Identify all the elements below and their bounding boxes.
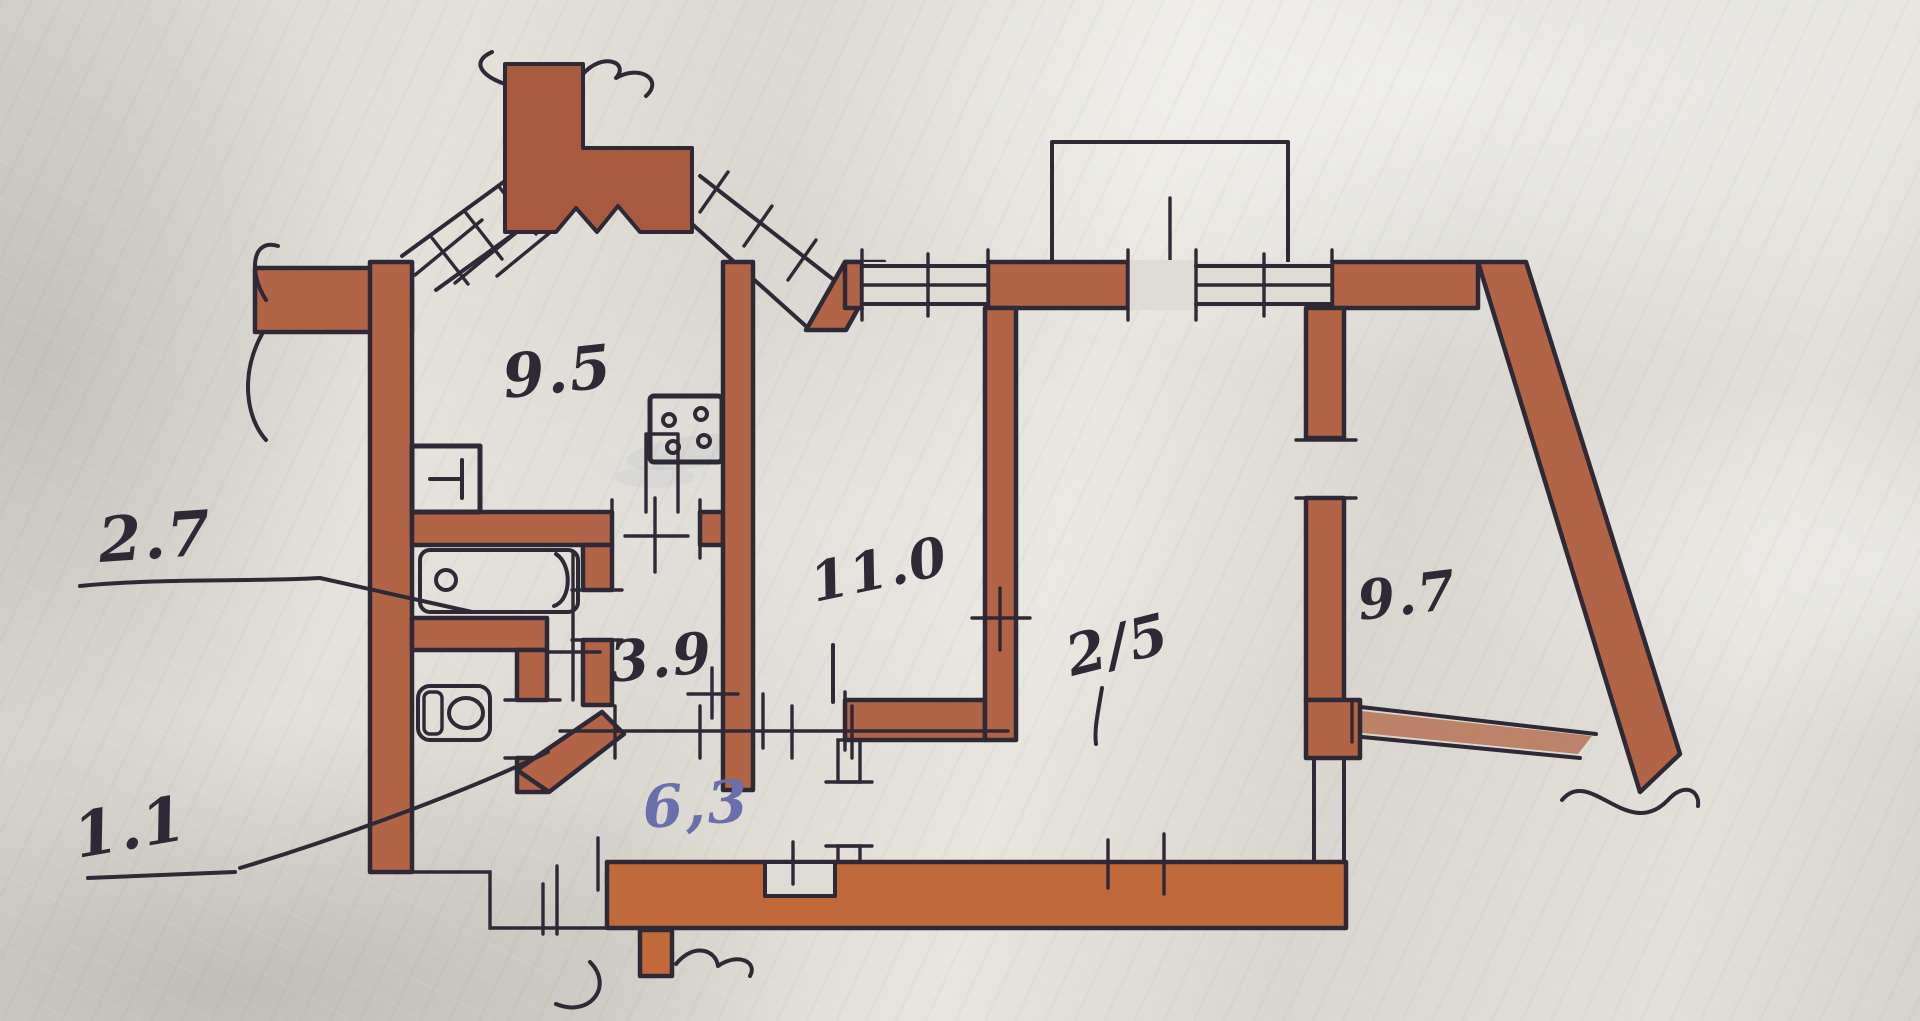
right-bedroom-door-opening: [1296, 440, 1356, 498]
hallway-area-label: 3.9: [607, 619, 717, 695]
kitchen-bottom-wall: [412, 512, 612, 545]
bottom-wall: [607, 862, 1346, 928]
left-wall: [370, 262, 412, 872]
toilet-label-underline: [88, 872, 235, 878]
shaft-break-squiggle-right: [583, 61, 652, 96]
living-room-label: 2/5: [1058, 600, 1176, 690]
floor-plan-photo: 9.5 2.7 1.1 3.9 6,3 11.0 2/5 9.7: [0, 0, 1920, 1021]
living-right-wall-lower: [1306, 498, 1344, 700]
shaft-break-squiggle-left: [480, 52, 505, 84]
entrance-break-squiggle: [556, 962, 600, 1007]
bedroom-area-label: 11.0: [804, 523, 954, 615]
floor-plan-svg: 9.5 2.7 1.1 3.9 6,3 11.0 2/5 9.7: [0, 0, 1920, 1021]
room-labels: 9.5 2.7 1.1 3.9 6,3 11.0 2/5 9.7: [68, 332, 1461, 873]
slanted-right-wall: [1478, 262, 1680, 792]
bedroom-living-wall: [985, 308, 1016, 740]
bathroom-area-label: 2.7: [95, 496, 215, 577]
corridor-diagonal-wall: [517, 712, 624, 792]
balcony-door-opening: [1128, 250, 1196, 320]
bath-toilet-divider: [412, 618, 547, 650]
kitchen-area-label: 9.5: [499, 332, 616, 413]
toilet-wall-upper: [517, 650, 547, 700]
wall-break-tail: [248, 334, 266, 440]
living-right-wall-upper: [1306, 308, 1344, 438]
toilet-icon: [418, 686, 490, 740]
right-wall-break-squiggle: [1562, 790, 1698, 813]
corridor-right-wall: [826, 740, 872, 862]
corridor-area-label: 6,3: [640, 767, 751, 842]
bathtub-icon: [420, 550, 578, 612]
sink-icon: [412, 446, 480, 512]
balcony-outline: [1052, 142, 1288, 262]
right-bedroom-area-label: 9.7: [1354, 557, 1461, 633]
stairwell-wall-stub: [640, 930, 672, 976]
vent-shaft-wall: [505, 64, 692, 232]
kitchen-bedroom-wall: [723, 262, 753, 790]
entrance-break-squiggle-2: [676, 951, 752, 976]
lower-right-wall: [1314, 756, 1344, 862]
toilet-area-label: 1.1: [68, 781, 193, 873]
bedroom-bottom-wall: [845, 700, 985, 740]
toilet-outer-wall: [412, 872, 607, 928]
entrance-door: [765, 842, 835, 896]
bathroom-wall-upper: [583, 545, 612, 590]
living-label-comma: [1095, 688, 1102, 744]
